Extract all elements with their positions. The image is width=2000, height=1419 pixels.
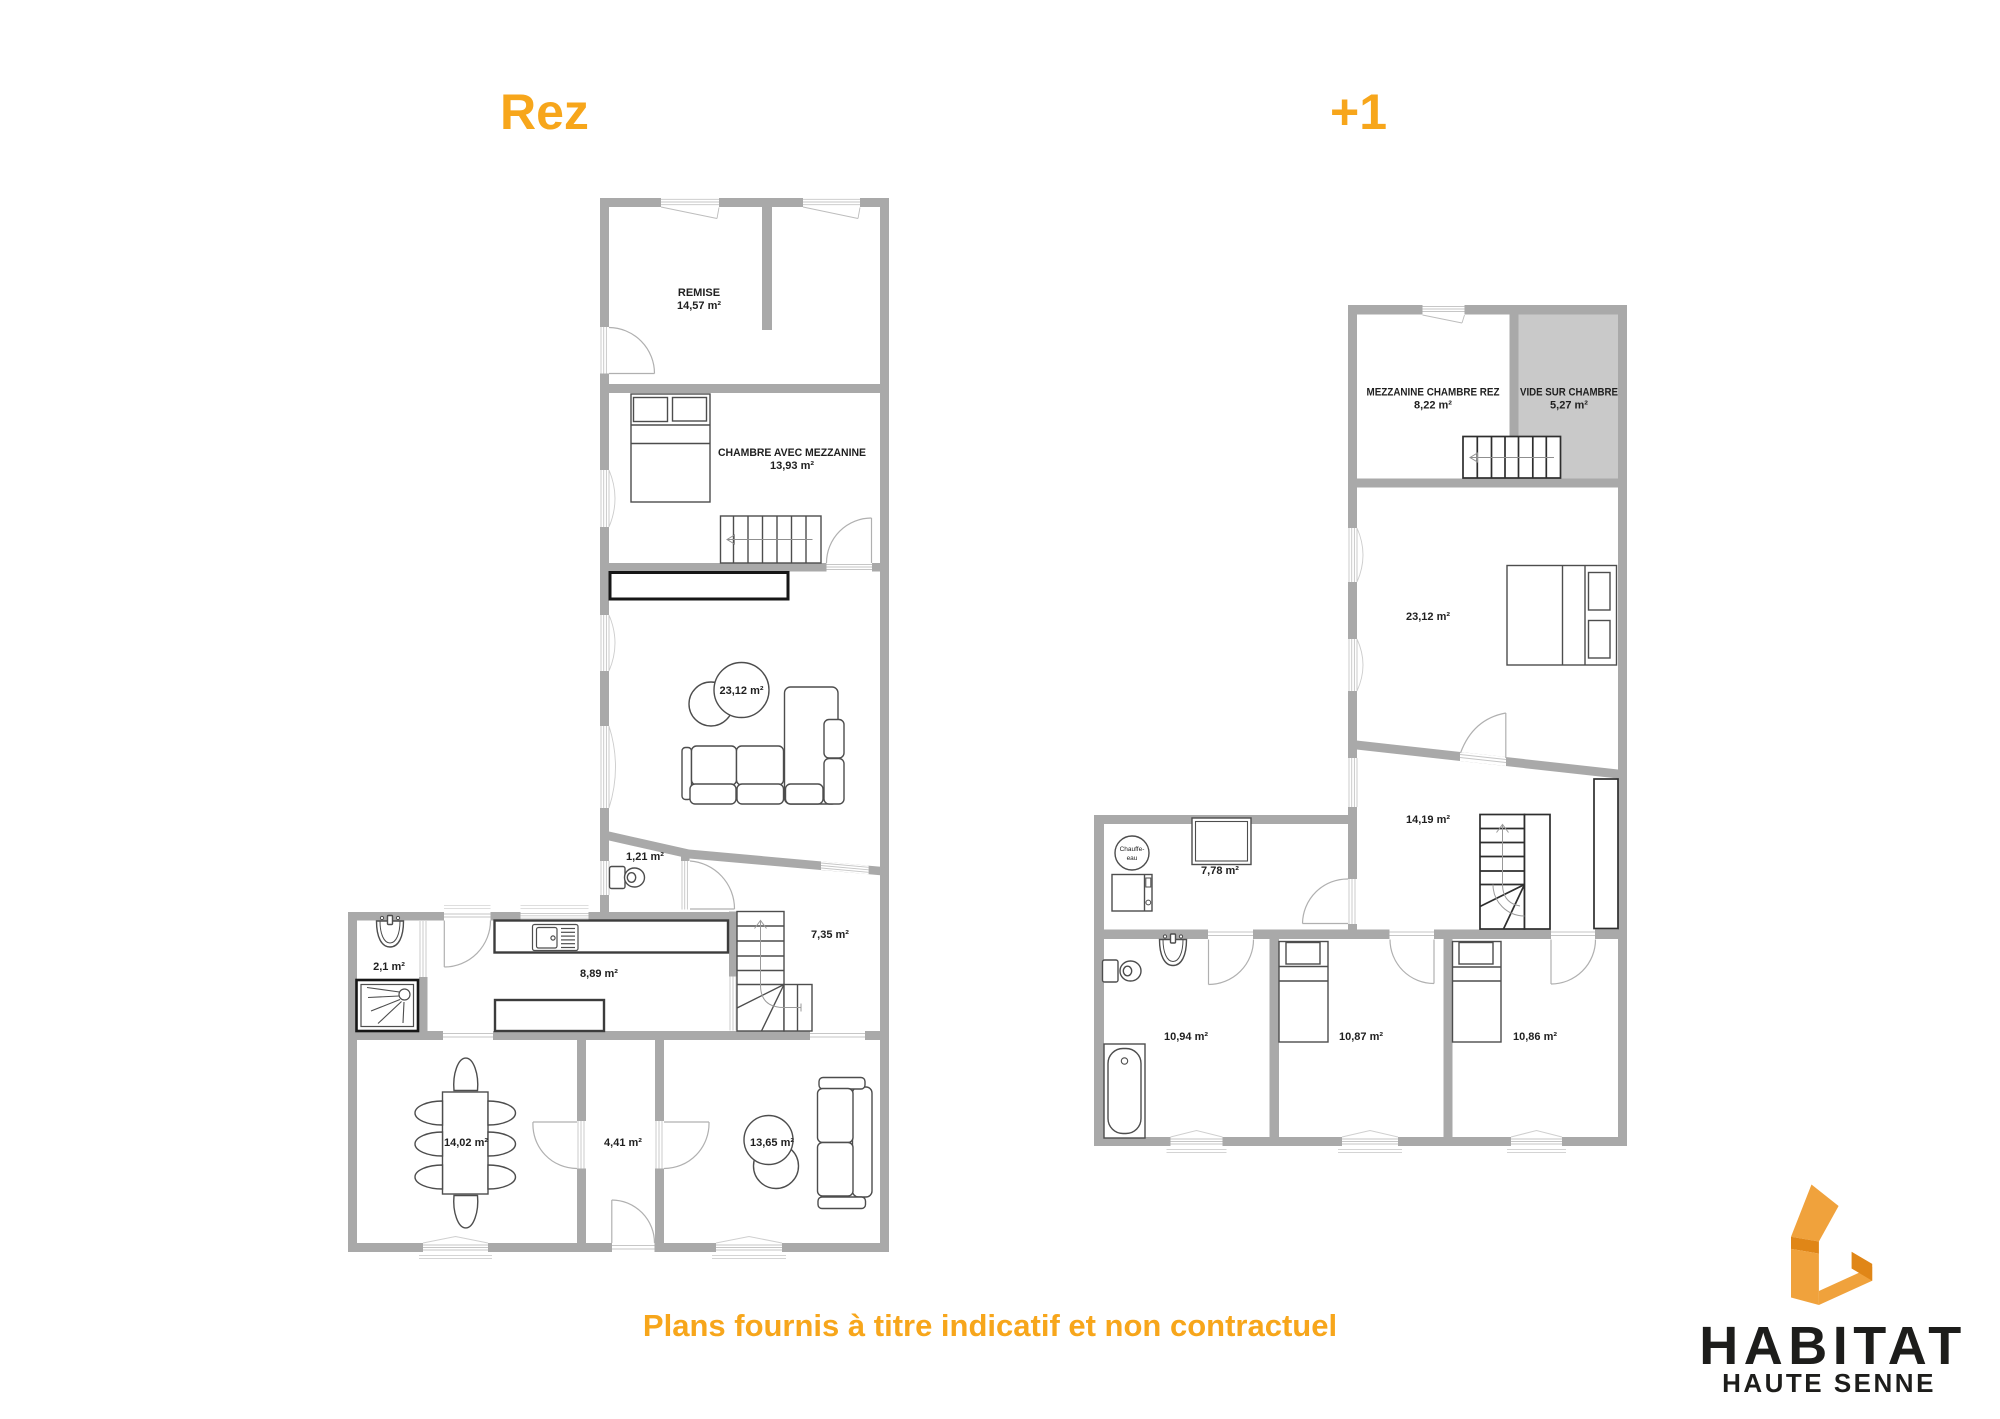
svg-text:14,57 m²: 14,57 m²	[677, 300, 721, 312]
svg-text:7,35 m²: 7,35 m²	[811, 929, 849, 941]
svg-text:5,27 m²: 5,27 m²	[1550, 400, 1588, 412]
svg-text:8,22 m²: 8,22 m²	[1414, 400, 1452, 412]
svg-text:HABITAT: HABITAT	[1699, 1316, 1966, 1376]
svg-text:7,78 m²: 7,78 m²	[1201, 865, 1239, 877]
svg-text:14,02 m²: 14,02 m²	[444, 1137, 488, 1149]
svg-text:CHAMBRE AVEC MEZZANINE: CHAMBRE AVEC MEZZANINE	[718, 447, 866, 459]
svg-text:10,86 m²: 10,86 m²	[1513, 1031, 1557, 1043]
svg-text:Rez: Rez	[500, 84, 589, 140]
svg-text:HAUTE SENNE: HAUTE SENNE	[1722, 1368, 1936, 1398]
svg-text:13,93 m²: 13,93 m²	[770, 460, 814, 472]
svg-text:23,12 m²: 23,12 m²	[1406, 611, 1450, 623]
svg-text:10,87 m²: 10,87 m²	[1339, 1031, 1383, 1043]
svg-text:Plans fournis à titre indicati: Plans fournis à titre indicatif et non c…	[643, 1308, 1337, 1343]
svg-text:1,21 m²: 1,21 m²	[626, 851, 664, 863]
svg-text:4,41 m²: 4,41 m²	[604, 1137, 642, 1149]
svg-text:eau: eau	[1127, 855, 1138, 862]
svg-text:2,1 m²: 2,1 m²	[373, 961, 405, 973]
svg-text:MEZZANINE CHAMBRE REZ: MEZZANINE CHAMBRE REZ	[1367, 387, 1500, 399]
svg-text:14,19 m²: 14,19 m²	[1406, 814, 1450, 826]
svg-text:23,12 m²: 23,12 m²	[719, 685, 763, 697]
svg-text:VIDE SUR CHAMBRE: VIDE SUR CHAMBRE	[1520, 387, 1618, 399]
svg-text:Chauffe-: Chauffe-	[1120, 846, 1145, 853]
svg-text:13,65 m²: 13,65 m²	[750, 1137, 794, 1149]
svg-text:REMISE: REMISE	[678, 287, 720, 299]
svg-text:+1: +1	[1330, 84, 1387, 140]
svg-text:10,94 m²: 10,94 m²	[1164, 1031, 1208, 1043]
svg-text:8,89 m²: 8,89 m²	[580, 968, 618, 980]
